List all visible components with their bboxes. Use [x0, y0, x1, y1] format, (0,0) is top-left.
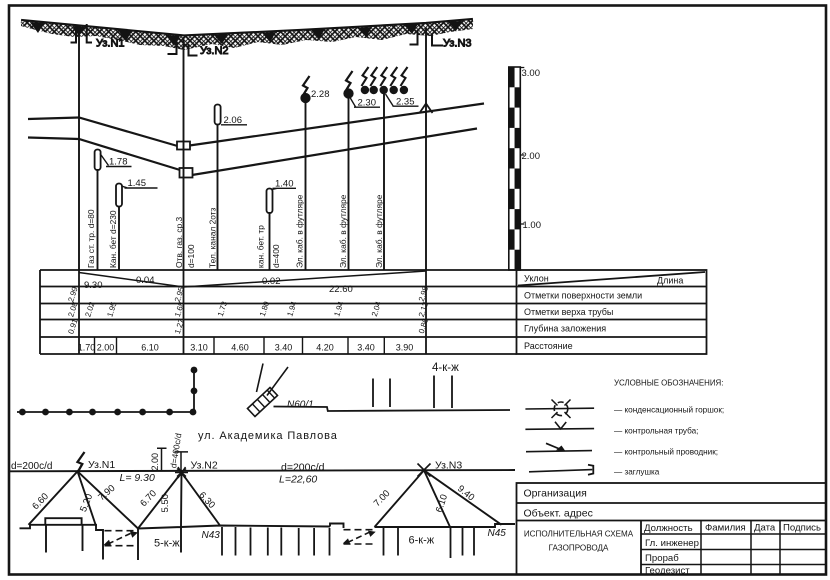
svg-text:3.10: 3.10: [190, 343, 208, 353]
svg-text:Газ ст. тр. d=80: Газ ст. тр. d=80: [86, 209, 96, 268]
svg-text:— контрольный проводник;: — контрольный проводник;: [614, 448, 718, 457]
svg-text:Эл. каб. в футляре: Эл. каб. в футляре: [295, 194, 305, 268]
svg-text:Отв. газ. ср.3: Отв. газ. ср.3: [174, 216, 184, 268]
svg-text:0.04: 0.04: [136, 275, 155, 286]
svg-text:3.40: 3.40: [275, 343, 293, 353]
svg-text:Эл. каб. в футляре: Эл. каб. в футляре: [374, 194, 384, 268]
svg-text:Уз.N2: Уз.N2: [191, 460, 218, 472]
svg-text:УСЛОВНЫЕ ОБОЗНАЧЕНИЯ:: УСЛОВНЫЕ ОБОЗНАЧЕНИЯ:: [614, 379, 723, 388]
svg-text:Тел. канал 2отз: Тел. канал 2отз: [208, 207, 218, 268]
svg-text:Глубина заложения: Глубина заложения: [524, 324, 606, 334]
svg-text:6.10: 6.10: [141, 343, 159, 353]
svg-text:ИСПОЛНИТЕЛЬНАЯ СХЕМА: ИСПОЛНИТЕЛЬНАЯ СХЕМА: [524, 530, 634, 539]
svg-text:Уз.N3: Уз.N3: [435, 460, 462, 472]
svg-text:Отметки поверхности земли: Отметки поверхности земли: [524, 291, 642, 301]
svg-text:0.02: 0.02: [262, 276, 281, 287]
svg-text:1.40: 1.40: [275, 179, 294, 190]
svg-text:2.28: 2.28: [311, 89, 330, 100]
svg-text:6-к-ж: 6-к-ж: [409, 535, 435, 547]
svg-text:2.00: 2.00: [522, 151, 541, 162]
svg-text:Эл. каб. в футляре: Эл. каб. в футляре: [338, 194, 348, 268]
svg-text:4.60: 4.60: [231, 343, 249, 353]
svg-text:Длина: Длина: [657, 276, 683, 286]
svg-text:кан. бет. тр: кан. бет. тр: [256, 225, 266, 268]
svg-text:5.50: 5.50: [160, 494, 171, 513]
svg-text:Гл. инженер: Гл. инженер: [645, 538, 699, 549]
svg-text:d=100: d=100: [186, 244, 196, 268]
svg-text:ул. Академика Павлова: ул. Академика Павлова: [198, 430, 338, 442]
svg-text:— конденсационный горшок;: — конденсационный горшок;: [614, 406, 724, 415]
svg-text:L=22,60: L=22,60: [279, 474, 317, 486]
svg-text:Должность: Должность: [644, 523, 693, 534]
svg-text:3.00: 3.00: [522, 68, 541, 79]
svg-text:2.00: 2.00: [97, 343, 115, 353]
svg-text:2.30: 2.30: [358, 98, 377, 109]
svg-text:1.00: 1.00: [523, 220, 542, 231]
svg-text:Геодезист: Геодезист: [645, 566, 690, 577]
svg-text:N43: N43: [202, 530, 221, 541]
svg-text:1.78: 1.78: [109, 157, 128, 168]
svg-text:Кан. бет d=230: Кан. бет d=230: [108, 210, 118, 268]
svg-text:1.45: 1.45: [128, 178, 147, 189]
svg-text:9.30: 9.30: [84, 280, 103, 291]
svg-text:Расстояние: Расстояние: [524, 341, 573, 351]
svg-text:5-к-ж: 5-к-ж: [154, 538, 180, 550]
svg-text:3.90: 3.90: [396, 343, 414, 353]
svg-text:N45: N45: [488, 528, 507, 539]
svg-text:1.70: 1.70: [78, 343, 96, 353]
svg-text:d=200c/d: d=200c/d: [281, 462, 325, 474]
svg-text:N60/1: N60/1: [287, 400, 314, 411]
svg-text:2.00: 2.00: [150, 453, 160, 471]
svg-text:Отметки верха трубы: Отметки верха трубы: [524, 307, 613, 317]
svg-text:d=400: d=400: [271, 244, 281, 268]
svg-text:4-к-ж: 4-к-ж: [432, 362, 459, 374]
svg-text:— заглушка: — заглушка: [614, 468, 660, 477]
svg-text:Уклон: Уклон: [524, 274, 549, 284]
svg-text:Фамилия: Фамилия: [705, 523, 746, 534]
svg-text:Организация: Организация: [524, 488, 587, 500]
svg-text:ГАЗОПРОВОДА: ГАЗОПРОВОДА: [549, 544, 609, 553]
svg-text:3.40: 3.40: [357, 343, 375, 353]
svg-text:Уз.N1: Уз.N1: [88, 459, 115, 471]
svg-text:Прораб: Прораб: [645, 553, 679, 564]
svg-text:Уз.N3: Уз.N3: [443, 38, 472, 50]
svg-text:2.06: 2.06: [224, 115, 243, 126]
svg-text:L= 9.30: L= 9.30: [120, 472, 155, 484]
svg-text:4.20: 4.20: [316, 343, 334, 353]
svg-text:Уз.N2: Уз.N2: [200, 45, 229, 57]
svg-text:Объект. адрес: Объект. адрес: [524, 508, 593, 520]
svg-text:Подпись: Подпись: [783, 523, 821, 534]
svg-text:Дата: Дата: [754, 523, 776, 534]
svg-text:Уз.N1: Уз.N1: [96, 38, 125, 50]
svg-text:d=200c/d: d=200c/d: [11, 461, 52, 472]
svg-text:22.60: 22.60: [329, 284, 353, 295]
svg-text:— контрольная труба;: — контрольная труба;: [614, 427, 698, 436]
svg-text:2.35: 2.35: [396, 97, 415, 108]
